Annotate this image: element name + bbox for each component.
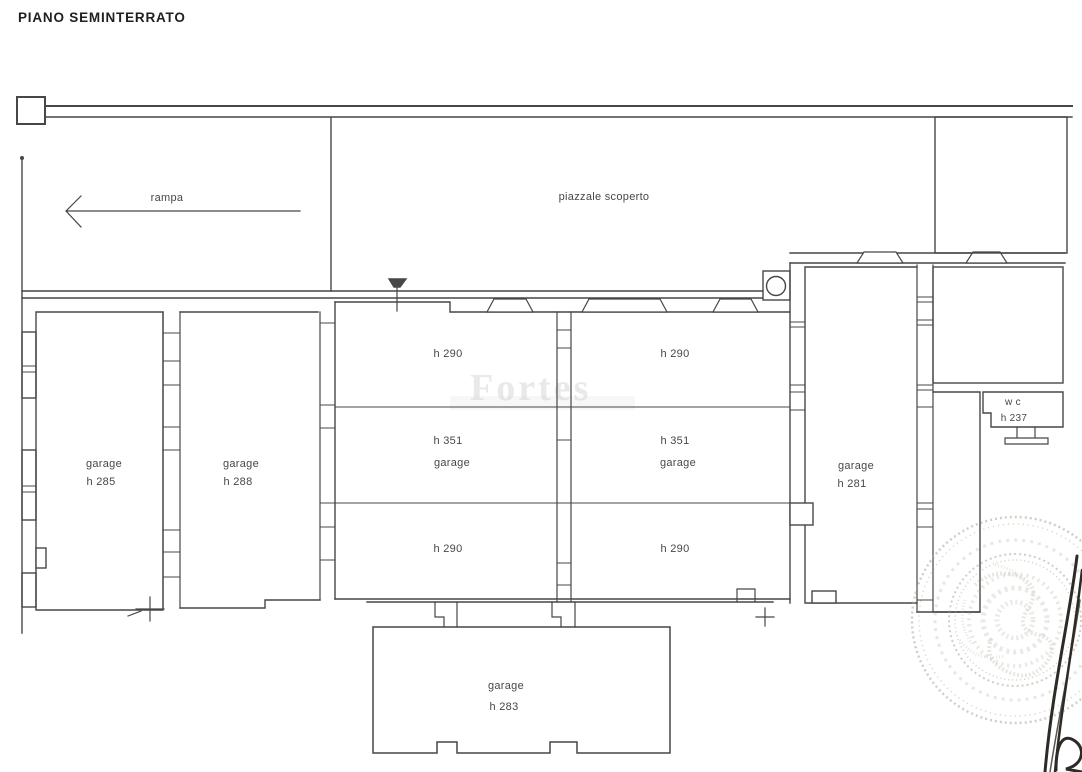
height-garage-285: h 285	[86, 476, 115, 488]
boundary-pillar	[17, 97, 45, 124]
door-sill	[487, 299, 533, 312]
label-garage-288: garage	[223, 458, 259, 470]
label-wc: w c	[1004, 397, 1021, 408]
wall-niche	[36, 548, 46, 568]
drain-symbol	[389, 279, 406, 287]
pilaster-ticks	[22, 366, 36, 492]
pilaster-strip-left	[163, 312, 180, 608]
height-center-left: h 351	[433, 435, 462, 447]
height-wc: h 237	[1001, 413, 1028, 424]
room-garage-281	[805, 267, 917, 603]
watermark-text: Fortes	[470, 367, 591, 409]
pilaster-ticks	[320, 323, 335, 560]
room-garage-288-south	[180, 600, 320, 608]
height-garage-281: h 281	[837, 478, 866, 490]
floor-plan-canvas: Fortes	[0, 0, 1082, 772]
label-ramp: rampa	[151, 192, 184, 204]
height-center-left-front: h 290	[433, 348, 462, 360]
wall-step	[737, 589, 755, 602]
survey-cross-marker	[756, 608, 774, 626]
manhole-circle	[767, 277, 786, 296]
wall-buttress	[22, 573, 36, 607]
label-garage-281: garage	[838, 460, 874, 472]
label-center-left: garage	[434, 457, 470, 469]
right-wing-north-wall	[790, 253, 1065, 263]
pilaster-ticks	[163, 333, 180, 577]
height-center-right-back: h 290	[660, 543, 689, 555]
label-garage-283: garage	[488, 680, 524, 692]
corridor-room	[933, 392, 980, 612]
signature-ink	[1045, 556, 1082, 772]
height-center-right-front: h 290	[660, 348, 689, 360]
watermark-layer: Fortes	[450, 367, 635, 410]
wall-niche	[790, 503, 813, 525]
survey-cross-marker	[128, 597, 164, 621]
courtyard-south-wall	[22, 291, 762, 298]
height-center-left-back: h 290	[433, 543, 462, 555]
wc-step-fixture	[1005, 427, 1048, 444]
wall-end-cap	[20, 156, 24, 160]
room-mid-right	[933, 267, 1063, 383]
door-sill	[857, 252, 903, 263]
pilaster-ticks	[917, 297, 933, 600]
height-garage-288: h 288	[223, 476, 252, 488]
label-courtyard: piazzale scoperto	[559, 191, 650, 203]
wall-buttress	[22, 450, 36, 520]
strip-door-notches	[435, 602, 575, 627]
door-sill	[713, 299, 758, 312]
pilaster-strip-center	[557, 312, 571, 602]
wall-buttress	[22, 332, 36, 398]
room-top-right	[935, 117, 1067, 253]
height-center-right: h 351	[660, 435, 689, 447]
door-recess	[812, 591, 836, 603]
label-center-right: garage	[660, 457, 696, 469]
pilaster-ticks	[790, 322, 805, 410]
height-garage-283: h 283	[489, 701, 518, 713]
door-sill	[582, 299, 667, 312]
label-garage-285: garage	[86, 458, 122, 470]
